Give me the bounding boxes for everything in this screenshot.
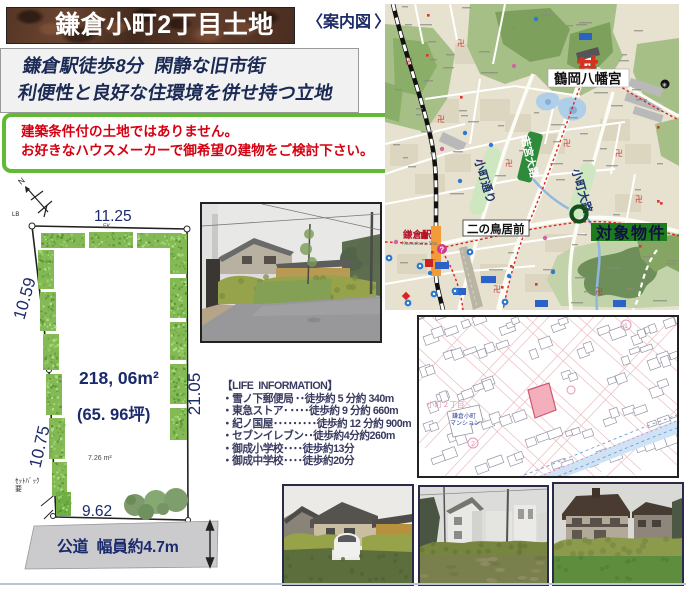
svg-text:✳: ✳ [662,82,668,90]
svg-text:FK: FK [103,224,111,230]
svg-text:Kamakura Sta.: Kamakura Sta. [402,241,439,247]
svg-text:1: 1 [624,323,628,330]
svg-text:小町２丁目: 小町２丁目 [427,400,465,409]
svg-text:N: N [17,176,27,187]
svg-text:鎌倉駅: 鎌倉駅 [402,229,432,241]
svg-text:卍: 卍 [437,115,445,124]
svg-text:卍: 卍 [405,57,413,66]
svg-text:卍: 卍 [457,39,465,48]
svg-text:卍: 卍 [635,195,643,204]
svg-text:(65. 96坪): (65. 96坪) [77,405,150,424]
svg-text:卍: 卍 [505,159,513,168]
svg-text:卍: 卍 [493,285,501,294]
svg-text:鎌倉小町: 鎌倉小町 [452,412,476,420]
svg-text:?: ? [439,246,444,255]
svg-text:卍: 卍 [615,149,623,158]
svg-text:卍: 卍 [563,139,571,148]
svg-text:マンション: マンション [450,420,480,427]
svg-text:二の鳥居前: 二の鳥居前 [467,222,525,236]
svg-text:21.05: 21.05 [185,373,204,416]
svg-text:LB: LB [12,212,19,218]
svg-text:対象物件: 対象物件 [595,224,666,243]
svg-text:鶴岡八幡宮: 鶴岡八幡宮 [554,71,622,87]
svg-text:ｾｯﾄﾊﾞｯｸ: ｾｯﾄﾊﾞｯｸ [15,477,40,485]
svg-text:9.62: 9.62 [82,503,112,520]
svg-text:2: 2 [471,441,475,448]
svg-text:10.59: 10.59 [10,275,40,321]
svg-text:7.26 m²: 7.26 m² [88,455,112,462]
svg-text:公道 幅員約4.7m: 公道 幅員約4.7m [57,537,179,556]
svg-text:218, 06m²: 218, 06m² [79,368,159,388]
svg-text:卍: 卍 [595,287,603,296]
svg-text:11.25: 11.25 [94,208,132,225]
svg-text:要: 要 [15,485,22,493]
